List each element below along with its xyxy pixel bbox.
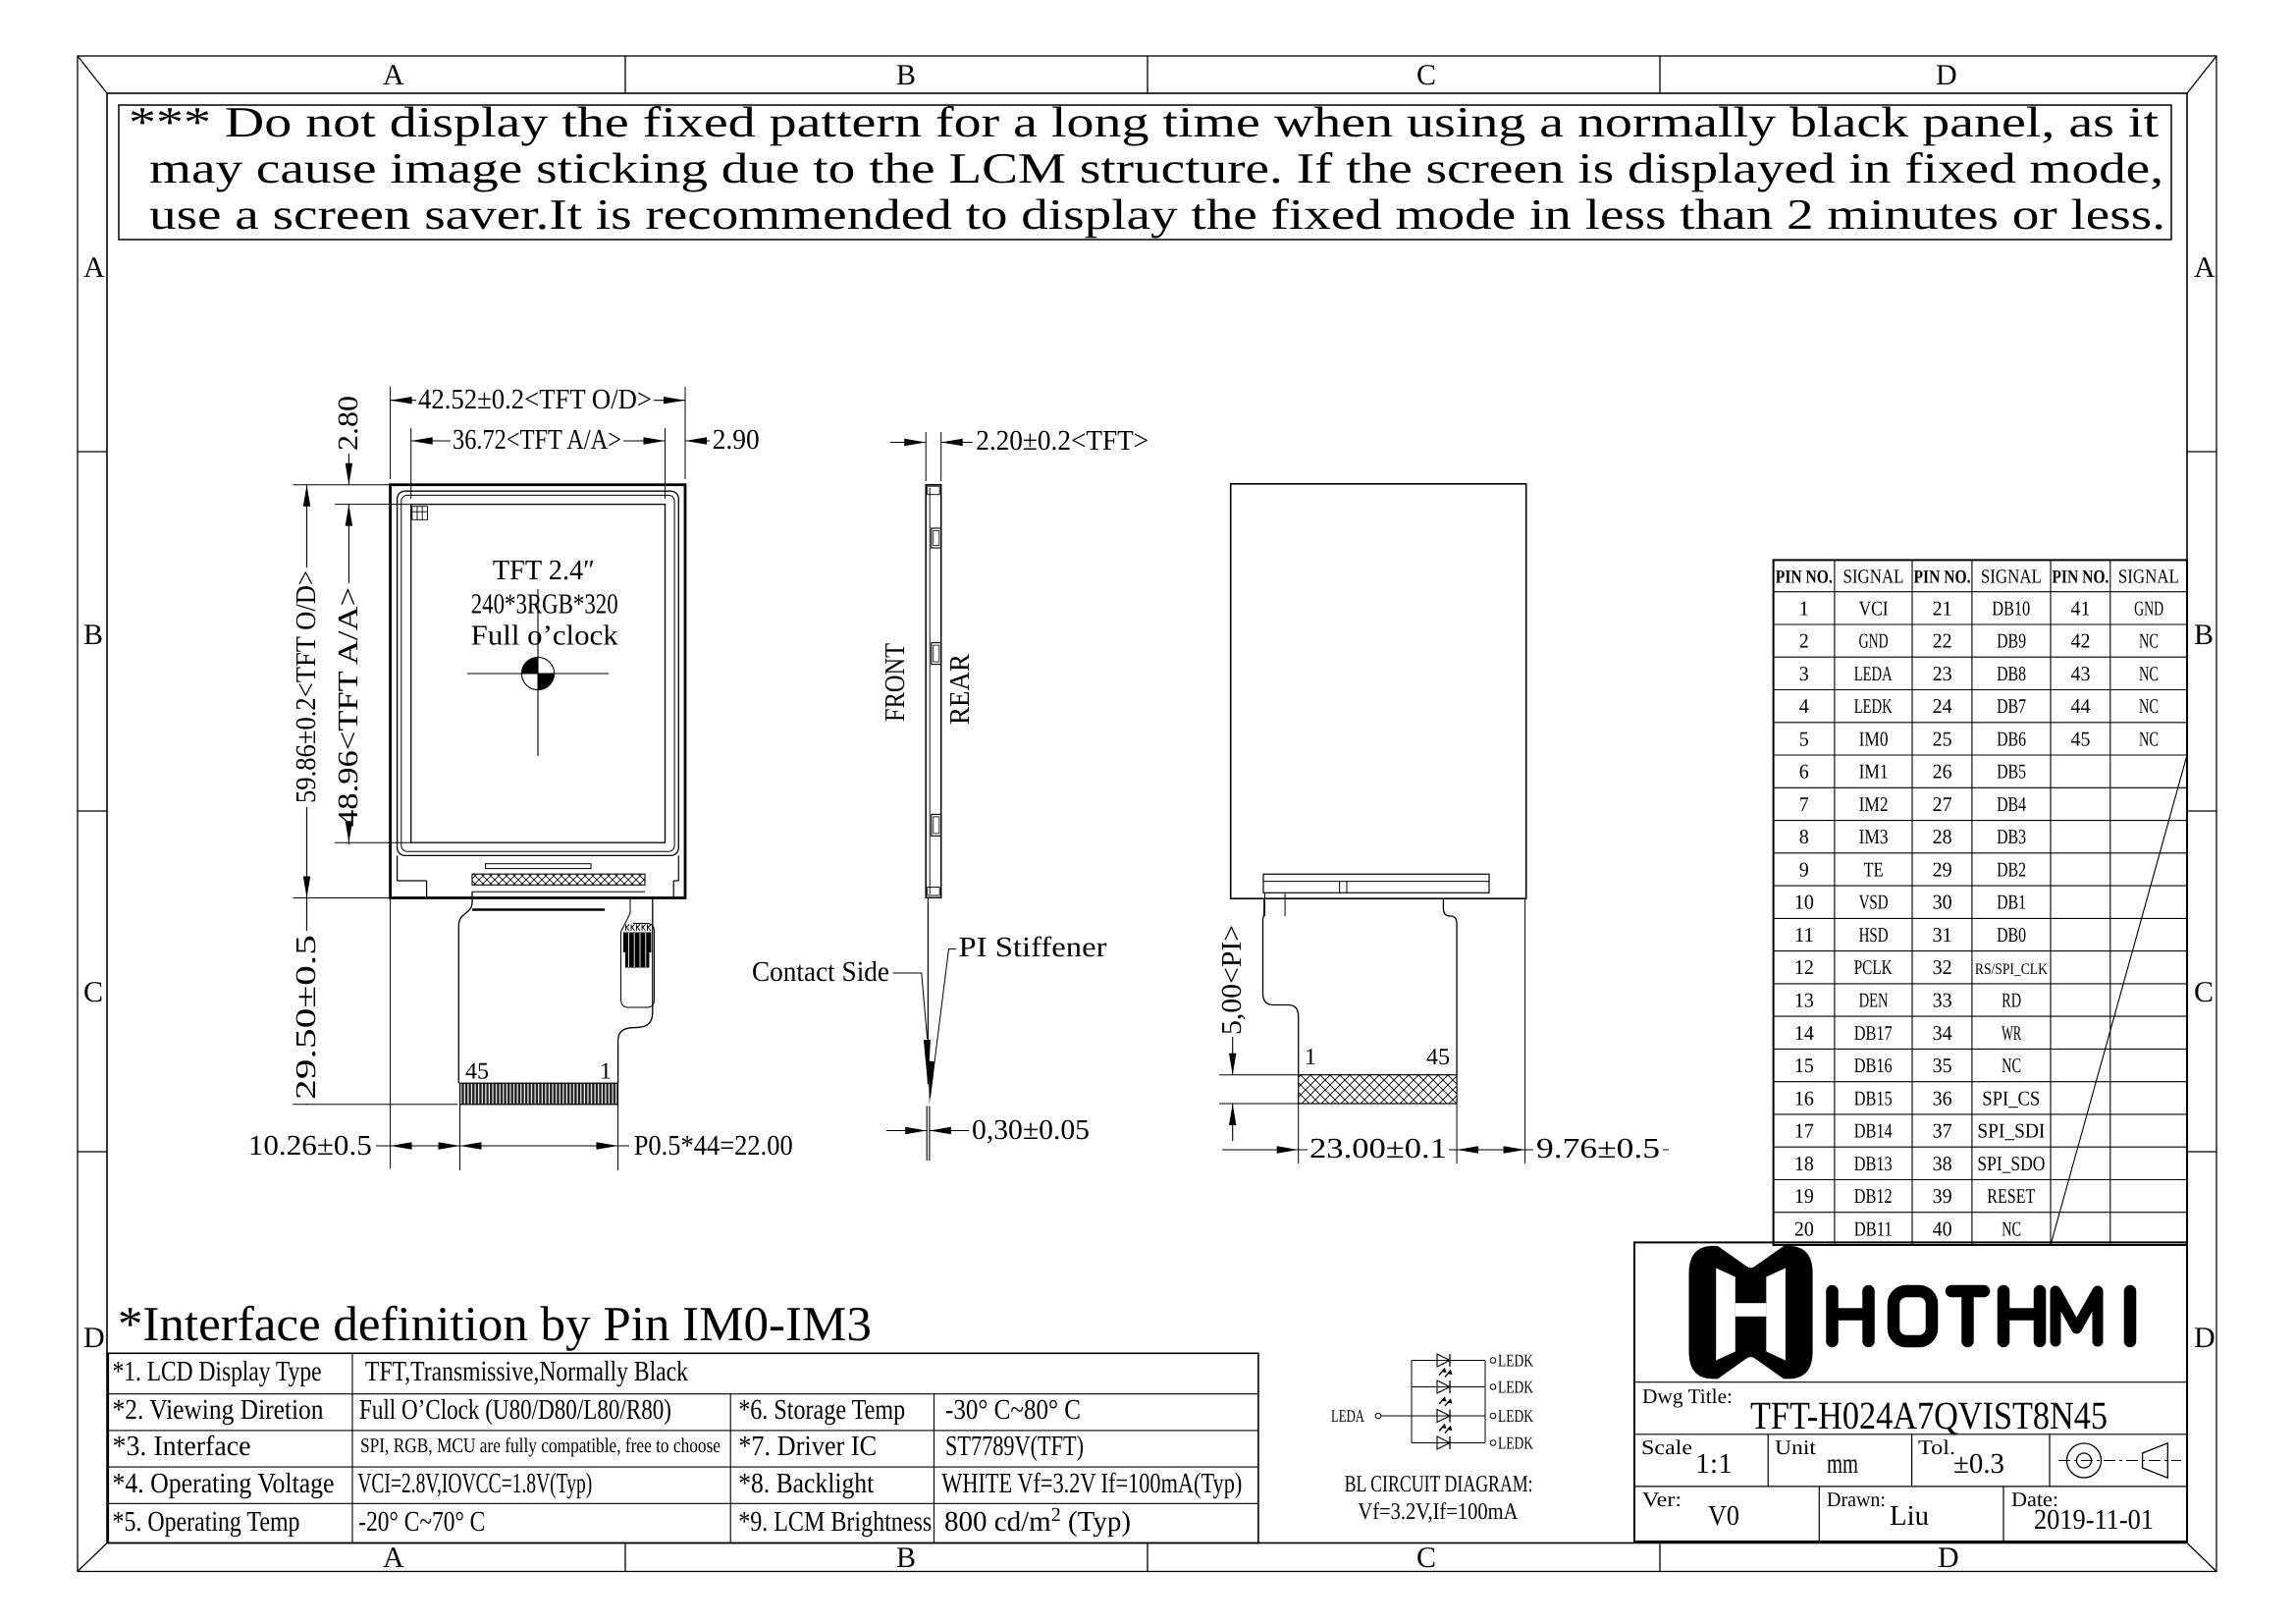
svg-text:4: 4 (1799, 694, 1809, 718)
svg-text:37: 37 (1933, 1119, 1952, 1143)
svg-text:Dwg Title:: Dwg Title: (1642, 1384, 1733, 1408)
svg-text:29: 29 (1933, 858, 1952, 882)
svg-text:SIGNAL: SIGNAL (2118, 567, 2179, 588)
svg-text:34: 34 (1933, 1021, 1952, 1045)
svg-text:DB7: DB7 (1997, 694, 2026, 718)
svg-text:ST7789V(TFT): ST7789V(TFT) (945, 1431, 1084, 1462)
svg-text:*8. Backlight: *8. Backlight (738, 1468, 874, 1499)
svg-text:D: D (1938, 1542, 1959, 1574)
svg-text:RD: RD (2002, 989, 2021, 1012)
svg-text:Tol.: Tol. (1918, 1435, 1955, 1459)
svg-text:Liu: Liu (1890, 1500, 1929, 1532)
svg-text:IM1: IM1 (1859, 760, 1889, 784)
svg-text:42: 42 (2071, 629, 2091, 653)
svg-text:DB12: DB12 (1854, 1184, 1893, 1208)
svg-text:45: 45 (465, 1059, 489, 1085)
svg-text:22: 22 (1933, 629, 1952, 653)
svg-text:D: D (2194, 1322, 2216, 1354)
svg-text:RS/SPI_CLK: RS/SPI_CLK (1975, 961, 2048, 978)
svg-text:45: 45 (1426, 1045, 1450, 1070)
svg-text:SPI_CS: SPI_CS (1982, 1086, 2040, 1109)
svg-text:B: B (896, 59, 916, 91)
svg-text:26: 26 (1933, 760, 1952, 784)
svg-text:NC: NC (2139, 662, 2159, 685)
svg-text:IM2: IM2 (1859, 792, 1889, 816)
svg-text:DB13: DB13 (1854, 1152, 1893, 1175)
svg-text:19: 19 (1794, 1184, 1814, 1208)
svg-text:DB10: DB10 (1992, 596, 2030, 620)
svg-text:*5. Operating Temp: *5. Operating Temp (113, 1506, 300, 1538)
svg-text:2: 2 (1799, 629, 1809, 653)
svg-text:*4. Operating Voltage: *4. Operating Voltage (113, 1468, 335, 1499)
svg-text:44: 44 (2071, 694, 2091, 718)
svg-text:*2. Viewing Diretion: *2. Viewing Diretion (113, 1394, 324, 1426)
svg-text:24: 24 (1933, 694, 1952, 718)
svg-text:A: A (383, 59, 404, 91)
svg-text:*Interface definition by Pin I: *Interface definition by Pin IM0-IM3 (118, 1296, 872, 1351)
svg-text:PIN NO.: PIN NO. (1914, 568, 1971, 588)
svg-text:6: 6 (1799, 760, 1809, 784)
svg-text:2019-11-01: 2019-11-01 (2034, 1504, 2154, 1536)
svg-text:23.00±0.1: 23.00±0.1 (1309, 1133, 1447, 1164)
svg-text:TFT 2.4″: TFT 2.4″ (493, 555, 595, 586)
svg-text:LEDK: LEDK (1498, 1434, 1533, 1453)
svg-text:DB1: DB1 (1997, 891, 2026, 914)
svg-text:Unit: Unit (1775, 1435, 1816, 1459)
svg-text:Full o’clock: Full o’clock (471, 621, 619, 652)
svg-text:P0.5*44=22.00: P0.5*44=22.00 (634, 1130, 793, 1162)
svg-text:D: D (1936, 59, 1957, 91)
svg-text:DB4: DB4 (1997, 792, 2026, 816)
svg-text:-20° C~70° C: -20° C~70° C (358, 1506, 485, 1538)
svg-text:*1. LCD Display Type: *1. LCD Display Type (113, 1356, 322, 1387)
svg-text:C: C (2194, 976, 2214, 1008)
svg-text:LEDK: LEDK (1498, 1378, 1533, 1397)
svg-text:SPI_SDI: SPI_SDI (1977, 1119, 2045, 1143)
svg-text:GND: GND (2134, 596, 2163, 620)
svg-text:DB5: DB5 (1997, 760, 2026, 784)
svg-text:PIN NO.: PIN NO. (2052, 568, 2109, 588)
svg-text:9.76±0.5: 9.76±0.5 (1536, 1133, 1660, 1164)
svg-text:36.72<TFT A/A>: 36.72<TFT A/A> (453, 424, 621, 456)
svg-text:2.20±0.2<TFT>: 2.20±0.2<TFT> (976, 425, 1148, 457)
svg-text:DEN: DEN (1859, 989, 1889, 1012)
svg-text:TFT-H024A7QVIST8N45: TFT-H024A7QVIST8N45 (1750, 1393, 2108, 1437)
svg-text:48.96<TFT A/A>: 48.96<TFT A/A> (333, 587, 364, 827)
svg-text:11: 11 (1794, 923, 1814, 947)
svg-text:NC: NC (2002, 1217, 2021, 1240)
svg-text:59.86±0.2<TFT O/D>: 59.86±0.2<TFT O/D> (291, 570, 322, 803)
svg-text:±0.3: ±0.3 (1953, 1448, 2004, 1480)
svg-text:TFT,Transmissive,Normally Blac: TFT,Transmissive,Normally Black (365, 1356, 688, 1387)
svg-text:*9. LCM Brightness: *9. LCM Brightness (738, 1506, 932, 1538)
svg-text:NC: NC (2139, 727, 2159, 750)
svg-text:DB14: DB14 (1854, 1119, 1893, 1143)
svg-text:IM3: IM3 (1859, 825, 1889, 848)
svg-text:38: 38 (1933, 1152, 1952, 1175)
svg-text:REAR: REAR (944, 653, 976, 725)
svg-text:VSD: VSD (1859, 891, 1889, 914)
svg-text:40: 40 (1933, 1217, 1952, 1240)
svg-text:DB3: DB3 (1997, 825, 2026, 848)
svg-text:C: C (1416, 59, 1436, 91)
svg-text:Ver:: Ver: (1642, 1488, 1682, 1511)
svg-text:1: 1 (600, 1059, 612, 1085)
svg-text:DB8: DB8 (1997, 662, 2026, 685)
svg-text:DB11: DB11 (1854, 1217, 1893, 1240)
svg-text:0,30±0.05: 0,30±0.05 (972, 1114, 1090, 1146)
svg-text:2.90: 2.90 (713, 424, 760, 456)
svg-text:30: 30 (1933, 891, 1952, 914)
svg-text:VCI: VCI (1859, 596, 1889, 620)
svg-text:45: 45 (2071, 727, 2091, 750)
svg-text:LEDA: LEDA (1331, 1406, 1364, 1426)
svg-text:TE: TE (1864, 858, 1884, 882)
svg-text:NC: NC (2139, 629, 2159, 653)
svg-text:DB9: DB9 (1997, 629, 2026, 653)
svg-text:36: 36 (1933, 1086, 1952, 1109)
svg-text:DB16: DB16 (1854, 1054, 1893, 1077)
svg-text:27: 27 (1933, 792, 1952, 816)
svg-text:FRONT: FRONT (880, 643, 911, 722)
svg-text:9: 9 (1799, 858, 1809, 882)
svg-text:*3. Interface: *3. Interface (113, 1431, 251, 1462)
svg-text:C: C (1416, 1542, 1436, 1574)
svg-text:LEDK: LEDK (1854, 694, 1893, 718)
svg-text:IM0: IM0 (1859, 727, 1889, 750)
svg-text:39: 39 (1933, 1184, 1952, 1208)
svg-text:B: B (83, 619, 103, 651)
svg-text:2.80: 2.80 (333, 396, 364, 451)
svg-text:42.52±0.2<TFT O/D>: 42.52±0.2<TFT O/D> (418, 384, 652, 415)
svg-text:15: 15 (1794, 1054, 1814, 1077)
svg-text:28: 28 (1933, 825, 1952, 848)
svg-text:VCI=2.8V,IOVCC=1.8V(Typ): VCI=2.8V,IOVCC=1.8V(Typ) (357, 1468, 592, 1499)
svg-text:SPI, RGB, MCU are fully compat: SPI, RGB, MCU are fully compatible, free… (360, 1434, 721, 1457)
svg-text:1: 1 (1305, 1045, 1316, 1070)
svg-text:35: 35 (1933, 1054, 1952, 1077)
svg-text:A: A (383, 1542, 404, 1574)
svg-text:V0: V0 (1708, 1500, 1739, 1532)
svg-text:10: 10 (1794, 891, 1814, 914)
svg-text:43: 43 (2071, 662, 2091, 685)
svg-text:Vf=3.2V,If=100mA: Vf=3.2V,If=100mA (1358, 1499, 1519, 1525)
svg-text:29.50±0.5: 29.50±0.5 (291, 935, 322, 1100)
svg-text:*7. Driver IC: *7. Driver IC (738, 1431, 877, 1462)
svg-text:A: A (2194, 251, 2216, 284)
svg-text:1: 1 (1799, 596, 1809, 620)
svg-text:DB0: DB0 (1997, 923, 2026, 947)
svg-text:D: D (83, 1322, 105, 1354)
svg-text:-30° C~80° C: -30° C~80° C (945, 1394, 1081, 1426)
svg-text:A: A (83, 251, 105, 284)
svg-text:31: 31 (1933, 923, 1952, 947)
svg-text:25: 25 (1933, 727, 1952, 750)
svg-text:16: 16 (1794, 1086, 1814, 1109)
svg-text:C: C (83, 976, 103, 1008)
svg-text:23: 23 (1933, 662, 1952, 685)
svg-text:PI Stiffener: PI Stiffener (959, 932, 1107, 963)
svg-text:3: 3 (1799, 662, 1809, 685)
svg-text:BL CIRCUIT DIAGRAM:: BL CIRCUIT DIAGRAM: (1345, 1472, 1533, 1497)
svg-text:SPI_SDO: SPI_SDO (1977, 1152, 2045, 1175)
svg-text:DB17: DB17 (1854, 1021, 1893, 1045)
svg-text:14: 14 (1794, 1021, 1814, 1045)
svg-text:SIGNAL: SIGNAL (1981, 567, 2042, 588)
svg-text:32: 32 (1933, 955, 1952, 979)
svg-text:PIN NO.: PIN NO. (1776, 568, 1833, 588)
svg-text:LEDK: LEDK (1498, 1406, 1533, 1426)
svg-text:Contact Side: Contact Side (752, 956, 889, 988)
svg-text:240*3RGB*320: 240*3RGB*320 (471, 589, 618, 621)
svg-text:PCLK: PCLK (1854, 955, 1893, 979)
svg-text:RESET: RESET (1987, 1184, 2035, 1208)
svg-text:may cause image sticking due t: may cause image sticking due to the LCM … (149, 144, 2163, 192)
svg-text:DB6: DB6 (1997, 727, 2026, 750)
svg-text:NC: NC (2002, 1054, 2021, 1077)
svg-text:NC: NC (2139, 694, 2159, 718)
svg-text:GND: GND (1859, 629, 1889, 653)
svg-text:*6. Storage Temp: *6. Storage Temp (738, 1394, 905, 1426)
svg-text:Scale: Scale (1641, 1435, 1692, 1459)
svg-text:17: 17 (1794, 1119, 1814, 1143)
svg-text:20: 20 (1794, 1217, 1814, 1240)
svg-text:SIGNAL: SIGNAL (1843, 567, 1904, 588)
svg-text:WHITE Vf=3.2V If=100mA(Typ): WHITE Vf=3.2V If=100mA(Typ) (941, 1468, 1242, 1499)
svg-text:HSD: HSD (1859, 923, 1889, 947)
svg-text:DB15: DB15 (1854, 1086, 1893, 1109)
svg-text:18: 18 (1794, 1152, 1814, 1175)
svg-text:5,00<PI>: 5,00<PI> (1216, 925, 1248, 1035)
svg-text:12: 12 (1794, 955, 1814, 979)
svg-text:DB2: DB2 (1997, 858, 2026, 882)
svg-text:21: 21 (1933, 596, 1952, 620)
svg-text:8: 8 (1799, 825, 1809, 848)
svg-text:1:1: 1:1 (1695, 1448, 1733, 1480)
svg-text:5: 5 (1799, 727, 1809, 750)
svg-text:33: 33 (1933, 989, 1952, 1012)
svg-text:LEDA: LEDA (1854, 662, 1894, 685)
svg-text:Full O’Clock (U80/D80/L80/R80): Full O’Clock (U80/D80/L80/R80) (359, 1394, 671, 1426)
svg-text:13: 13 (1794, 989, 1814, 1012)
svg-text:800 cd/m2 (Typ): 800 cd/m2 (Typ) (944, 1504, 1131, 1538)
svg-text:mm: mm (1827, 1448, 1858, 1480)
svg-text:41: 41 (2071, 596, 2091, 620)
svg-text:7: 7 (1799, 792, 1809, 816)
svg-text:WR: WR (2002, 1021, 2021, 1045)
svg-text:B: B (896, 1542, 916, 1574)
svg-text:*** Do not display the fixed p: *** Do not display the fixed pattern for… (129, 98, 2159, 146)
svg-text:use a screen saver.It is recom: use a screen saver.It is recommended to … (149, 190, 2165, 239)
svg-text:B: B (2194, 619, 2214, 651)
svg-text:10.26±0.5: 10.26±0.5 (248, 1130, 372, 1162)
svg-text:Drawn:: Drawn: (1827, 1488, 1886, 1511)
svg-text:LEDK: LEDK (1498, 1351, 1533, 1371)
